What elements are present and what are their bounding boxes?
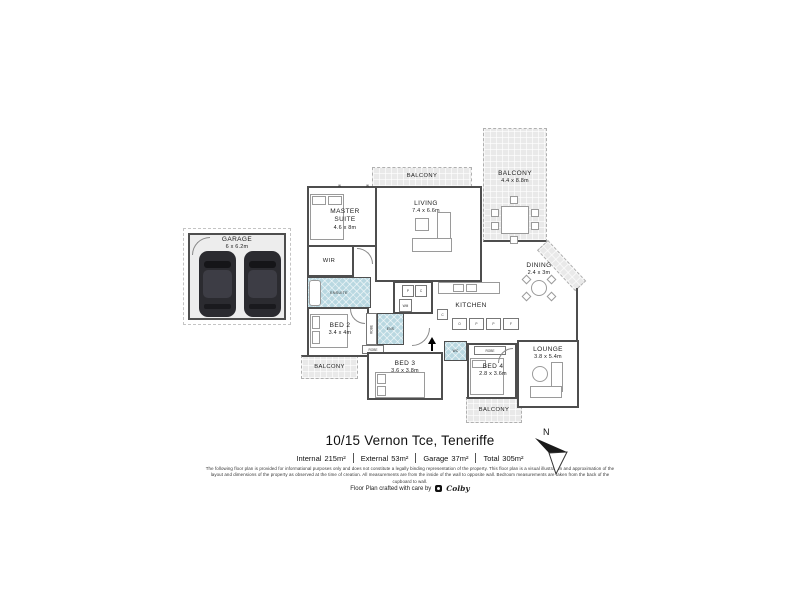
bed3-label: BED 3 3.6 x 3.8m — [372, 360, 438, 376]
room-name: MASTER SUITE — [327, 208, 363, 225]
room-balcony-top: BALCONY — [372, 167, 472, 187]
chair-icon — [491, 209, 499, 217]
chair-icon — [510, 196, 518, 204]
car-icon — [244, 251, 281, 317]
sofa-icon — [530, 386, 562, 398]
brand-name: Colby — [446, 484, 469, 493]
area-label: Internal — [296, 454, 321, 463]
room-name: BED 2 — [318, 322, 362, 330]
side-table-icon — [532, 366, 548, 382]
room-name: BALCONY — [314, 364, 345, 372]
washing-machine: WM — [399, 299, 412, 312]
car-rear-window — [249, 304, 276, 309]
sofa-icon — [412, 238, 452, 252]
window-marker: W — [338, 184, 341, 188]
kitchen-unit-fridge: F — [503, 318, 519, 330]
car-windshield — [249, 261, 276, 268]
room-ens: ENS — [377, 313, 404, 345]
wm-label: WM — [403, 304, 409, 308]
wir-label: WIR — [312, 258, 346, 266]
unit-label: P — [475, 322, 477, 326]
cupboard-label: P — [407, 289, 409, 293]
separator — [415, 453, 416, 463]
pillow-icon — [377, 386, 386, 396]
kitchen-unit-pantry: P — [486, 318, 501, 330]
area-total: Total 305m² — [483, 454, 523, 463]
car-icon — [199, 251, 236, 317]
car-rear-window — [204, 304, 231, 309]
area-internal: Internal 215m² — [296, 454, 345, 463]
room-name: BED 3 — [372, 360, 438, 368]
unit-label: C — [441, 313, 443, 317]
room-name: DINING — [514, 262, 564, 270]
master-suite-label: MASTER SUITE 4.6 x 8m — [327, 208, 363, 232]
room-dims: 2.4 x 3m — [514, 270, 564, 277]
room-name: WC — [453, 349, 459, 353]
separator — [353, 453, 354, 463]
chair-icon — [531, 222, 539, 230]
cooktop-icon — [466, 284, 477, 292]
room-name: BALCONY — [479, 407, 510, 415]
chair-icon — [491, 222, 499, 230]
room-balcony-left: BALCONY — [301, 355, 358, 379]
door-arc — [357, 248, 373, 264]
room-name: KITCHEN — [447, 302, 495, 310]
room-dims: 2.8 x 3.6m — [472, 371, 514, 378]
chair-icon — [547, 292, 557, 302]
room-name: GARAGE — [205, 236, 269, 244]
room-dims: 4.6 x 8m — [327, 225, 363, 232]
kitchen-unit-oven: O — [452, 318, 467, 330]
room-dims: 3.8 x 5.4m — [522, 354, 574, 361]
unit-label: F — [510, 322, 512, 326]
entry-arrow-stem — [431, 344, 433, 351]
bed4-label: BED 4 2.8 x 3.6m — [472, 363, 514, 379]
room-name: LIVING — [398, 200, 454, 208]
chair-icon — [522, 292, 532, 302]
bed2-label: BED 2 3.4 x 4m — [318, 322, 362, 338]
area-value: 53m² — [391, 454, 408, 463]
robe-cabinet: ROBE — [366, 313, 377, 345]
area-label: Total — [483, 454, 499, 463]
laundry-cupboard: P — [402, 285, 414, 297]
credit-text: Floor Plan crafted with care by — [350, 486, 431, 492]
brand-logo-icon — [435, 485, 442, 492]
room-dims: 3.6 x 3.8m — [372, 368, 438, 375]
dining-table-icon — [531, 280, 547, 296]
balcony-main-label: BALCONY 4.4 x 8.8m — [488, 170, 542, 186]
room-wc: WC — [444, 341, 467, 361]
room-name: ENS — [387, 327, 394, 331]
outdoor-table-icon — [501, 206, 529, 234]
cupboard-label: C — [420, 289, 422, 293]
unit-label: O — [458, 322, 460, 326]
robe-label: ROBE — [370, 324, 374, 333]
car-windshield — [204, 261, 231, 268]
kitchen-unit-pantry: P — [469, 318, 484, 330]
robe-label: ROBE — [485, 349, 494, 353]
room-name: LOUNGE — [522, 346, 574, 354]
window-marker: W — [366, 184, 369, 188]
bathtub-icon — [309, 280, 321, 306]
area-value: 37m² — [451, 454, 468, 463]
room-name: BALCONY — [488, 170, 542, 178]
area-external: External 53m² — [361, 454, 409, 463]
lounge-label: LOUNGE 3.8 x 5.4m — [522, 346, 574, 362]
room-balcony-bottom: BALCONY — [466, 397, 522, 423]
pillow-icon — [312, 196, 326, 205]
area-value: 215m² — [324, 454, 345, 463]
room-name: BED 4 — [472, 363, 514, 371]
area-label: Garage — [423, 454, 448, 463]
kitchen-unit: C — [437, 309, 448, 320]
compass-icon: N — [523, 424, 579, 480]
wall-segment — [576, 288, 578, 342]
entry-arrow-icon — [428, 337, 436, 344]
compass-n-label: N — [543, 427, 550, 437]
chair-icon — [531, 209, 539, 217]
area-label: External — [361, 454, 389, 463]
room-name: BALCONY — [407, 173, 438, 181]
room-dims: 4.4 x 8.8m — [488, 178, 542, 185]
area-value: 305m² — [502, 454, 523, 463]
credit-line: Floor Plan crafted with care by Colby — [170, 484, 650, 493]
dining-label: DINING 2.4 x 3m — [514, 262, 564, 278]
floor-plan-page: GARAGE 6 x 6.2m BALCONY BALCONY 4.4 x 8.… — [0, 0, 800, 600]
pillow-icon — [328, 196, 342, 205]
car-roof — [248, 270, 277, 298]
separator — [475, 453, 476, 463]
chair-icon — [510, 236, 518, 244]
laundry-cupboard: C — [415, 285, 427, 297]
room-name: WIR — [312, 258, 346, 266]
car-roof — [203, 270, 232, 298]
cooktop-icon — [453, 284, 464, 292]
room-dims: 3.4 x 4m — [318, 330, 362, 337]
robe-label: ROBE — [368, 348, 377, 352]
kitchen-label: KITCHEN — [447, 302, 495, 310]
coffee-table-icon — [415, 218, 429, 231]
area-garage: Garage 37m² — [423, 454, 468, 463]
unit-label: P — [492, 322, 494, 326]
garage-label: GARAGE 6 x 6.2m — [205, 236, 269, 252]
room-name: ENSUITE — [330, 291, 348, 295]
